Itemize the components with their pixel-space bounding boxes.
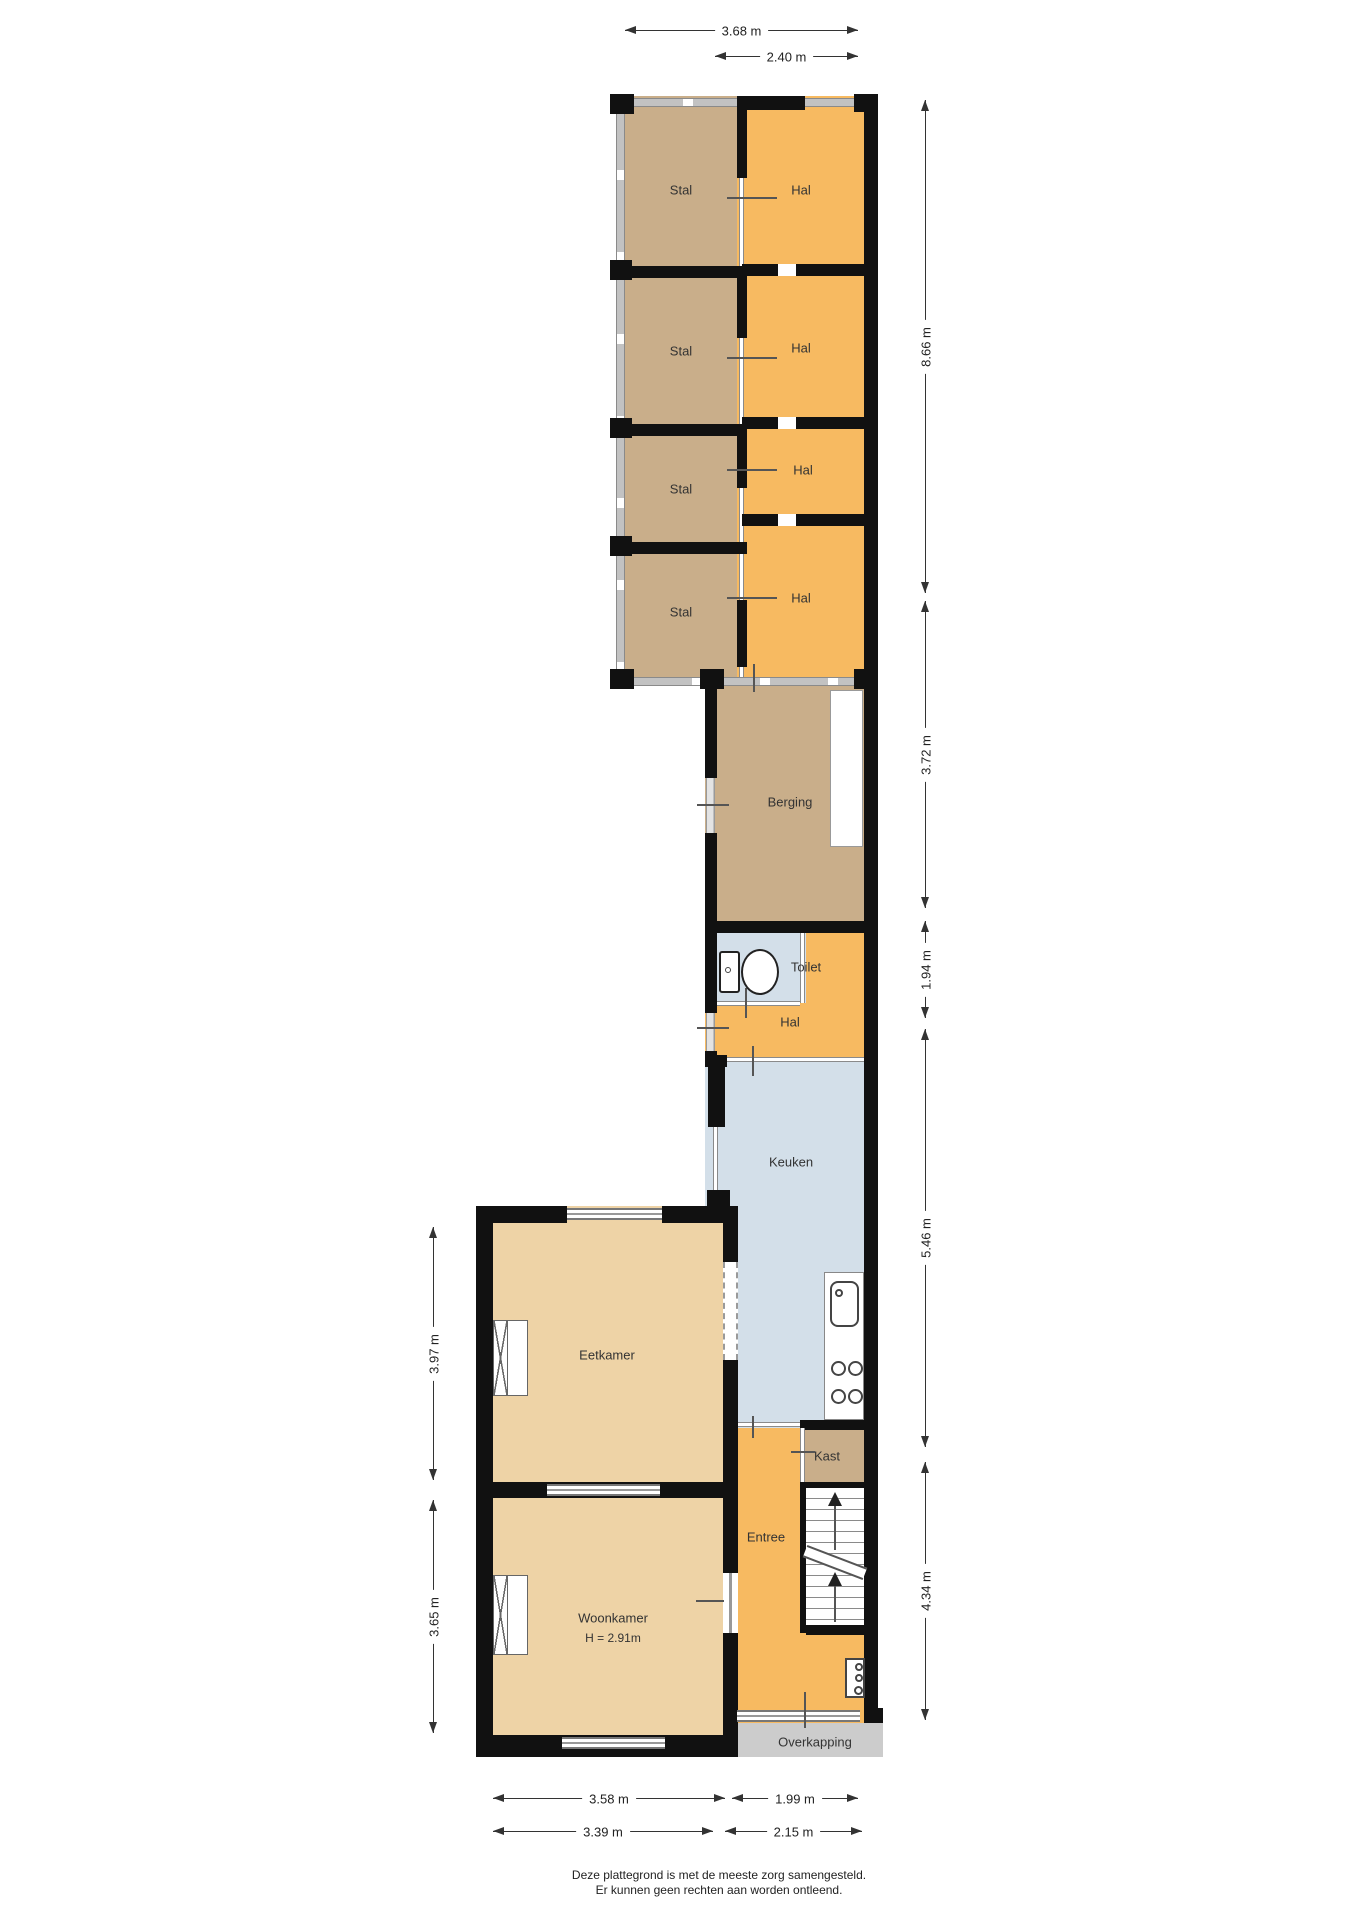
stairs-arrow-stem-top [834, 1506, 836, 1550]
floor-plan: Stal Stal Stal Stal Hal Hal Hal Hal Berg… [0, 0, 1358, 1920]
dim-bottom-left-outer: 3.58 m [493, 1798, 725, 1799]
wall-right-outer [864, 96, 878, 1708]
door-gap-hal-2 [778, 417, 796, 429]
door-tick-stal-3 [727, 469, 777, 471]
label-toilet: Toilet [791, 960, 821, 975]
wall-berging-left-upper [705, 681, 717, 778]
door-tick-block-bottom [753, 664, 755, 692]
stove-burner-1 [831, 1361, 846, 1376]
corner-bottom-left [610, 669, 634, 689]
wall-stal-divider-3 [616, 542, 747, 554]
disclaimer-line-2: Er kunnen geen rechten aan worden ontlee… [572, 1883, 866, 1898]
wall-toilet-hal [717, 1001, 800, 1006]
label-kast: Kast [814, 1449, 840, 1464]
glass-wall-left [616, 98, 625, 676]
wall-eetkamer-entree [723, 1428, 738, 1573]
wall-keuken-entree [738, 1422, 800, 1427]
label-eetkamer: Eetkamer [579, 1348, 635, 1363]
dim-top-hal-width: 2.40 m [715, 56, 858, 57]
door-tick-stal-2 [727, 357, 777, 359]
label-stal-2: Stal [670, 344, 692, 359]
dim-right-2: 3.72 m [925, 601, 926, 908]
wall-kast-top [800, 1420, 878, 1430]
post-left-1 [610, 260, 632, 280]
stairs-up-arrow-icon-2 [828, 1572, 842, 1586]
wall-stal-divider-2 [616, 424, 747, 436]
post-left-3 [610, 536, 632, 556]
toilet-icon [719, 949, 779, 997]
door-tick-woonkamer-entree [696, 1600, 724, 1602]
divider-seg-3 [737, 436, 747, 488]
post-left-2 [610, 418, 632, 438]
glass-wall-top-stal [625, 98, 737, 107]
wall-entree-right-stub [864, 1708, 883, 1723]
workbench [830, 690, 863, 847]
wall-eetkamer-left [476, 1206, 493, 1490]
wall-hal-divider-2 [742, 417, 864, 429]
label-hal-middle: Hal [780, 1015, 800, 1030]
radiator-icon-woonkamer [493, 1575, 528, 1655]
wall-hal-divider-3 [742, 514, 864, 526]
wall-woonkamer-left [476, 1498, 493, 1757]
door-gap-woonkamer-entree [723, 1573, 738, 1633]
dim-right-4: 5.46 m [925, 1029, 926, 1447]
dim-right-5: 4.34 m [925, 1462, 926, 1720]
dim-bottom-right-inner: 2.15 m [725, 1831, 862, 1832]
door-tick-berging [697, 804, 729, 806]
dim-left-eetkamer: 3.97 m [433, 1227, 434, 1480]
label-hal-2: Hal [791, 341, 811, 356]
wall-berging-left-lower [705, 833, 717, 933]
label-stal-4: Stal [670, 605, 692, 620]
stairs-arrow-stem-bottom [834, 1586, 836, 1622]
divider-stal-hal [739, 105, 744, 677]
radiator-icon-eetkamer [493, 1320, 528, 1396]
wall-hal-divider-1 [742, 264, 864, 276]
window-entree-bottom [737, 1710, 860, 1722]
wall-kast-left [800, 1428, 805, 1482]
label-entree: Entree [747, 1530, 785, 1545]
stove-burner-4 [848, 1389, 863, 1404]
door-tick-stal-1 [727, 197, 777, 199]
label-overkapping: Overkapping [778, 1735, 852, 1750]
door-tick-entree-bottom [804, 1692, 806, 1728]
door-tick-hal-left [697, 1027, 729, 1029]
label-stal-3: Stal [670, 482, 692, 497]
opening-eetkamer-keuken [723, 1262, 738, 1360]
window-eetkamer-woonkamer [547, 1484, 660, 1496]
boiler-icon [845, 1658, 865, 1698]
door-tick-keuken-entree [752, 1416, 754, 1438]
divider-seg-4 [737, 600, 747, 667]
room-fill-hal-band [705, 1003, 878, 1060]
door-tick-hal-keuken [752, 1046, 754, 1076]
faucet-icon [835, 1289, 843, 1297]
wall-hal-keuken [727, 1057, 864, 1062]
wall-keuken-pillar [708, 1057, 725, 1127]
dim-bottom-right-outer: 1.99 m [732, 1798, 858, 1799]
corner-top-right [854, 94, 878, 112]
label-stal-1: Stal [670, 183, 692, 198]
label-hal-4: Hal [791, 591, 811, 606]
label-hal-1: Hal [791, 183, 811, 198]
glass-wall-bottom [634, 677, 854, 686]
corner-bottom-right [854, 669, 878, 689]
label-hal-3: Hal [793, 463, 813, 478]
dim-left-woonkamer: 3.65 m [433, 1500, 434, 1733]
door-tick-kast [791, 1451, 815, 1453]
stove-burner-3 [831, 1389, 846, 1404]
sink-icon [830, 1281, 859, 1327]
window-woonkamer-bottom [562, 1737, 665, 1749]
label-berging: Berging [768, 795, 813, 810]
kitchen-counter [824, 1272, 864, 1420]
label-woonkamer: Woonkamer [578, 1611, 648, 1626]
dim-bottom-left-inner: 3.39 m [493, 1831, 713, 1832]
door-gap-hal-left [706, 1013, 715, 1051]
dim-right-1: 8.66 m [925, 100, 926, 593]
wall-toilet-left [705, 933, 717, 1006]
wall-woonkamer-right-lower [723, 1633, 738, 1757]
dim-right-3: 1.94 m [925, 921, 926, 1018]
divider-seg-2 [737, 278, 747, 338]
window-eetkamer-top [567, 1208, 662, 1220]
dim-top-width: 3.68 m [625, 30, 858, 31]
corner-top-left [610, 94, 634, 114]
wall-stal-divider-1 [616, 266, 747, 278]
disclaimer: Deze plattegrond is met de meeste zorg s… [572, 1868, 866, 1898]
door-tick-stal-4 [727, 597, 777, 599]
door-gap-hal-3 [778, 514, 796, 526]
wall-hal-left-upper [705, 1003, 717, 1013]
label-woonkamer-height: H = 2.91m [585, 1631, 641, 1645]
wall-top-hal [737, 96, 805, 110]
wall-eetkamer-right-b [723, 1360, 738, 1428]
divider-seg-1 [737, 110, 747, 178]
wall-stairs-bottom [806, 1625, 864, 1635]
stairs-up-arrow-icon [828, 1492, 842, 1506]
glass-wall-top-hal [805, 98, 854, 107]
label-keuken: Keuken [769, 1155, 813, 1170]
wall-berging-bottom [705, 921, 878, 933]
disclaimer-line-1: Deze plattegrond is met de meeste zorg s… [572, 1868, 866, 1883]
stove-burner-2 [848, 1361, 863, 1376]
door-gap-hal-1 [778, 264, 796, 276]
wall-eetkamer-right-a [723, 1206, 738, 1262]
